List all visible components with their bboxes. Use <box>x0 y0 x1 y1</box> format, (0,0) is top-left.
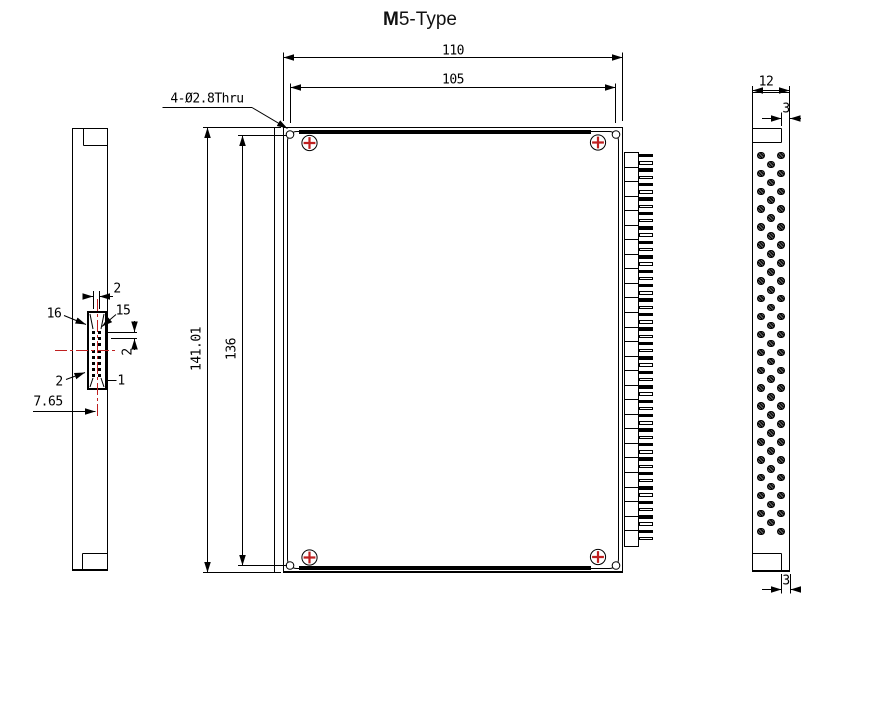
edge-connector-fin <box>639 306 653 309</box>
edge-connector-segment <box>625 226 638 241</box>
edge-connector-fin <box>639 212 653 215</box>
dim-label-row-pitch-2: 2 <box>122 348 135 355</box>
edge-connector-fin <box>639 414 653 417</box>
dim-label-hole-callout: 4-Ø2.8Thru <box>170 93 243 106</box>
edge-connector-segment <box>625 371 638 386</box>
front-view-hole-callout-leader <box>163 108 288 129</box>
edge-connector-segment <box>625 517 638 532</box>
edge-connector-fin <box>639 508 653 511</box>
edge-connector-fin <box>639 335 653 338</box>
edge-connector-fin <box>639 356 653 359</box>
engineering-drawing-canvas: M5-Type <box>0 0 886 701</box>
edge-connector-fin <box>639 450 653 453</box>
edge-connector-fin <box>639 241 653 244</box>
edge-connector-segment <box>625 153 638 168</box>
edge-connector-segment <box>625 473 638 488</box>
dim-label-136: 136 <box>226 338 239 360</box>
edge-connector-fin <box>639 501 653 504</box>
edge-connector-fin <box>639 486 653 489</box>
edge-connector-segment <box>625 415 638 430</box>
edge-connector-fin <box>639 176 653 179</box>
edge-connector-fin <box>639 342 653 345</box>
front-view-width-dim-105 <box>291 84 616 124</box>
edge-connector-fin <box>639 168 653 171</box>
edge-connector-fin <box>639 270 653 273</box>
edge-connector-segment <box>625 444 638 459</box>
edge-connector-segment <box>625 211 638 226</box>
edge-connector-fin <box>639 385 653 388</box>
edge-connector-fin <box>639 530 653 533</box>
edge-connector-fin <box>639 262 653 265</box>
dim-label-141-01: 141.01 <box>191 327 204 371</box>
edge-connector-fin <box>639 255 653 258</box>
front-view-top-rail <box>299 130 591 134</box>
dim-label-3-top: 3 <box>782 103 789 116</box>
edge-connector-segment <box>625 269 638 284</box>
edge-connector-segment <box>625 298 638 313</box>
edge-connector-fin <box>639 190 653 193</box>
title-bold-part: M <box>383 9 399 30</box>
edge-connector-segment <box>625 342 638 357</box>
label-pin-15: 15 <box>116 305 131 318</box>
edge-connector-fin <box>639 392 653 395</box>
dim-label-3-bottom: 3 <box>782 575 789 588</box>
edge-connector-segment <box>625 502 638 517</box>
front-view-height-dim-136 <box>238 136 287 566</box>
edge-connector-fin <box>639 205 653 208</box>
edge-connector-fin <box>639 378 653 381</box>
front-view-inner-plate <box>287 131 619 569</box>
left-view-row-pitch-dim <box>107 321 137 350</box>
label-pin-1: 1 <box>117 375 124 388</box>
edge-connector-segment <box>625 458 638 473</box>
edge-connector-fin <box>639 363 653 366</box>
front-view-bottom-rail <box>299 566 591 570</box>
dim-label-col-pitch-2: 2 <box>113 283 120 296</box>
edge-connector-fin <box>639 320 653 323</box>
edge-connector-fin <box>639 183 653 186</box>
edge-connector-fin <box>639 537 653 540</box>
edge-connector-segment <box>625 197 638 212</box>
label-pin-2: 2 <box>55 376 62 389</box>
label-pin-16: 16 <box>47 308 62 321</box>
edge-connector-fin <box>639 522 653 525</box>
edge-connector-segment <box>625 182 638 197</box>
edge-connector-fin <box>639 443 653 446</box>
edge-connector-fin <box>639 349 653 352</box>
edge-connector-fin <box>639 327 653 330</box>
front-view-edge-connector-column <box>624 152 639 547</box>
edge-connector-fin <box>639 291 653 294</box>
edge-connector-fin <box>639 371 653 374</box>
front-view-height-dim-141 <box>203 128 281 573</box>
edge-connector-fin <box>639 428 653 431</box>
edge-connector-segment <box>625 357 638 372</box>
edge-connector-fin <box>639 197 653 200</box>
edge-connector-segment <box>625 386 638 401</box>
dim-label-105: 105 <box>442 74 464 87</box>
dim-label-12: 12 <box>759 76 774 89</box>
edge-connector-segment <box>625 168 638 183</box>
edge-connector-segment <box>625 400 638 415</box>
edge-connector-fin <box>639 226 653 229</box>
edge-connector-fin <box>639 421 653 424</box>
edge-connector-fin <box>639 313 653 316</box>
edge-connector-segment <box>625 488 638 503</box>
drawing-title: M5-Type <box>383 9 457 31</box>
edge-connector-fin <box>639 400 653 403</box>
edge-connector-fin <box>639 457 653 460</box>
edge-connector-fin <box>639 472 653 475</box>
edge-connector-fin <box>639 515 653 518</box>
edge-connector-fin <box>639 233 653 236</box>
edge-connector-segment <box>625 255 638 270</box>
edge-connector-fin <box>639 161 653 164</box>
edge-connector-fin <box>639 479 653 482</box>
edge-connector-fin <box>639 407 653 410</box>
edge-connector-segment <box>625 531 638 546</box>
edge-connector-fin <box>639 298 653 301</box>
edge-connector-fin <box>639 277 653 280</box>
edge-connector-fin <box>639 436 653 439</box>
edge-connector-segment <box>625 429 638 444</box>
edge-connector-fin <box>639 493 653 496</box>
edge-connector-segment <box>625 328 638 343</box>
edge-connector-fin <box>639 154 653 157</box>
side-view-board-outline <box>752 92 790 572</box>
edge-connector-fin <box>639 465 653 468</box>
title-rest-part: 5-Type <box>399 9 457 30</box>
edge-connector-fin <box>639 248 653 251</box>
left-view-connector-body <box>87 311 107 390</box>
edge-connector-fin <box>639 284 653 287</box>
dim-label-110: 110 <box>442 45 464 58</box>
edge-connector-fin <box>639 219 653 222</box>
edge-connector-segment <box>625 313 638 328</box>
edge-connector-segment <box>625 284 638 299</box>
edge-connector-segment <box>625 240 638 255</box>
dim-label-7-65: 7.65 <box>33 396 62 409</box>
